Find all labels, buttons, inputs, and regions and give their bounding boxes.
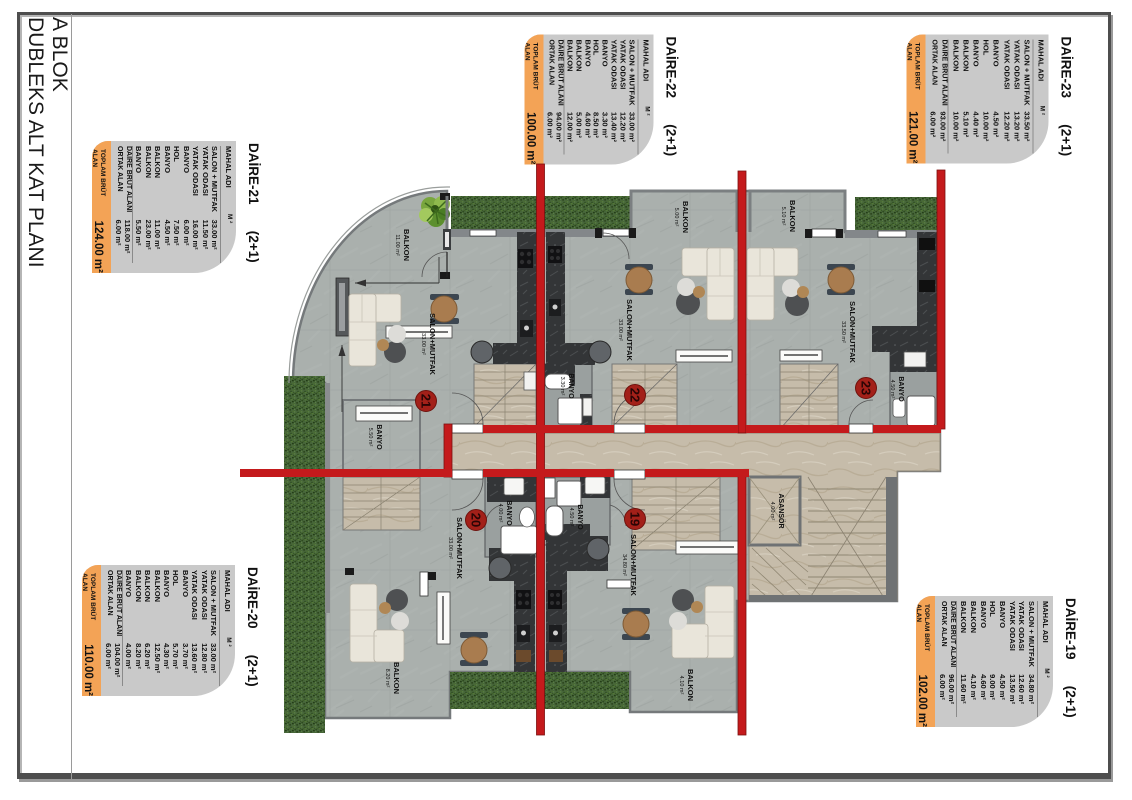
svg-text:33.50 m²: 33.50 m²: [840, 321, 846, 343]
svg-text:4.50 m²: 4.50 m²: [568, 508, 574, 527]
svg-text:SALON+MUTFAK: SALON+MUTFAK: [455, 517, 464, 579]
svg-text:BANYO: BANYO: [576, 504, 583, 530]
svg-text:21: 21: [419, 394, 434, 408]
svg-text:BANYO: BANYO: [505, 500, 512, 526]
svg-text:4.50 m²: 4.50 m²: [889, 380, 895, 399]
svg-text:20: 20: [469, 513, 484, 527]
svg-text:BALKON: BALKON: [392, 662, 401, 694]
svg-text:BALKON: BALKON: [686, 669, 695, 701]
svg-text:5.50 m²: 5.50 m²: [367, 428, 373, 447]
svg-text:23: 23: [859, 381, 874, 395]
svg-text:4.10 m²: 4.10 m²: [678, 676, 684, 695]
svg-text:BANYO: BANYO: [897, 376, 904, 402]
svg-text:4.00 m²: 4.00 m²: [769, 502, 775, 521]
svg-text:5.00 m²: 5.00 m²: [673, 208, 679, 227]
svg-text:5.10 m²: 5.10 m²: [780, 207, 786, 226]
svg-text:BALKON: BALKON: [681, 201, 690, 233]
svg-text:BALKON: BALKON: [402, 229, 411, 261]
svg-text:SALON+MUTFAK: SALON+MUTFAK: [428, 313, 437, 375]
svg-text:19: 19: [628, 512, 643, 526]
svg-text:4.00 m²: 4.00 m²: [497, 504, 503, 523]
svg-text:BANYO: BANYO: [567, 373, 574, 399]
svg-text:ASANSÖR: ASANSÖR: [777, 493, 786, 528]
svg-text:BALKON: BALKON: [788, 200, 797, 232]
svg-text:SALON+MUTFAK: SALON+MUTFAK: [625, 299, 634, 361]
svg-text:SALON+MUTFAK: SALON+MUTFAK: [848, 301, 857, 363]
svg-text:8.20 m²: 8.20 m²: [384, 669, 390, 688]
svg-text:33.00 m²: 33.00 m²: [447, 537, 453, 559]
svg-text:33.00 m²: 33.00 m²: [617, 319, 623, 341]
svg-text:34.80 m²: 34.80 m²: [621, 554, 627, 576]
svg-text:BANYO: BANYO: [375, 424, 382, 450]
svg-text:SALON+MUTFAK: SALON+MUTFAK: [629, 534, 638, 596]
svg-text:22: 22: [628, 388, 643, 402]
svg-text:33.00 m²: 33.00 m²: [420, 333, 426, 355]
svg-text:3.30 m²: 3.30 m²: [559, 377, 565, 396]
svg-text:11.00 m²: 11.00 m²: [394, 234, 400, 255]
